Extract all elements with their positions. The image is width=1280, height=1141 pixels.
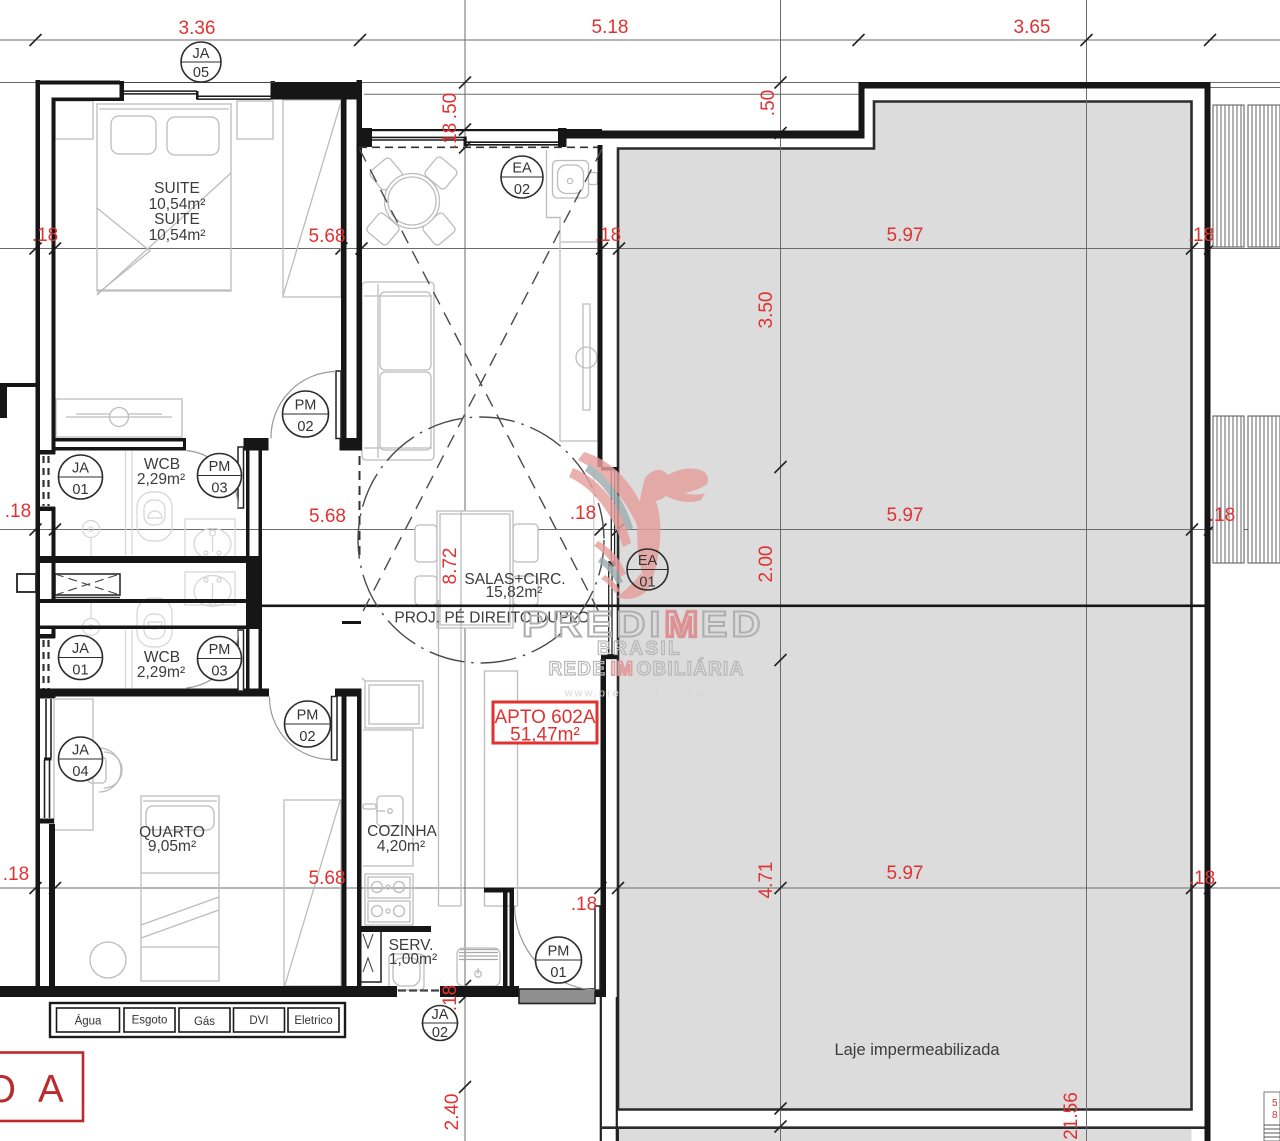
svg-text:PM: PM [548, 944, 570, 960]
svg-text:21.56: 21.56 [1061, 1092, 1082, 1140]
svg-text:5.68: 5.68 [309, 868, 346, 889]
svg-text:PM: PM [297, 708, 319, 724]
svg-text:.18: .18 [5, 501, 31, 522]
svg-text:EA: EA [638, 553, 658, 569]
svg-text:5: 5 [1272, 1098, 1278, 1109]
svg-text:5.97: 5.97 [887, 225, 924, 246]
svg-text:5.68: 5.68 [309, 226, 346, 247]
svg-text:02: 02 [514, 182, 530, 198]
svg-text:02: 02 [432, 1025, 448, 1041]
svg-text:10,54m²: 10,54m² [149, 227, 206, 244]
svg-text:5.97: 5.97 [887, 863, 924, 884]
svg-text:.18: .18 [1209, 505, 1235, 526]
svg-text:01: 01 [72, 482, 88, 498]
svg-text:2.00: 2.00 [756, 546, 777, 583]
svg-text:2,29m²: 2,29m² [137, 664, 185, 681]
svg-text:JA: JA [72, 641, 89, 657]
svg-text:Esgoto: Esgoto [132, 1015, 168, 1027]
svg-text:01: 01 [550, 965, 566, 981]
svg-text:4.71: 4.71 [756, 862, 777, 899]
svg-text:PM: PM [209, 642, 231, 658]
svg-text:OBILIÁRIA: OBILIÁRIA [637, 658, 745, 680]
svg-text:03: 03 [211, 664, 227, 680]
svg-text:15,82m²: 15,82m² [486, 584, 543, 601]
svg-text:2.40: 2.40 [442, 1094, 463, 1131]
svg-text:Laje impermeabilizada: Laje impermeabilizada [834, 1041, 1000, 1059]
svg-text:SUITE: SUITE [154, 180, 200, 197]
svg-text:4,20m²: 4,20m² [377, 838, 425, 855]
svg-text:02: 02 [297, 419, 313, 435]
svg-text:01: 01 [639, 575, 655, 591]
svg-text:.18: .18 [440, 123, 461, 149]
svg-text:8: 8 [1272, 1110, 1278, 1121]
svg-text:.18: .18 [570, 503, 596, 524]
svg-text:DVI: DVI [249, 1015, 268, 1027]
svg-text:.50: .50 [440, 93, 461, 119]
svg-text:ED: ED [701, 604, 765, 645]
svg-text:04: 04 [72, 764, 88, 780]
svg-text:5.18: 5.18 [592, 17, 629, 38]
svg-text:EA: EA [512, 161, 532, 177]
svg-text:Água: Água [75, 1015, 102, 1028]
svg-text:5.97: 5.97 [887, 505, 924, 526]
svg-text:JA: JA [193, 46, 210, 62]
svg-text:.18: .18 [571, 894, 597, 915]
svg-text:Eletrico: Eletrico [294, 1015, 332, 1027]
svg-text:3.36: 3.36 [179, 18, 216, 39]
svg-text:A: A [38, 1068, 64, 1111]
svg-text:1,00m²: 1,00m² [389, 951, 437, 968]
svg-text:03: 03 [211, 481, 227, 497]
svg-text:SUITE: SUITE [154, 211, 200, 228]
svg-text:3.50: 3.50 [756, 292, 777, 329]
svg-text:51,47m²: 51,47m² [510, 725, 580, 746]
svg-text:IM: IM [611, 659, 635, 680]
svg-text:Gás: Gás [194, 1016, 215, 1028]
svg-text:PM: PM [295, 398, 317, 414]
svg-text:3.65: 3.65 [1014, 17, 1051, 38]
svg-text:02: 02 [299, 729, 315, 745]
svg-text:.18: .18 [1189, 868, 1215, 889]
svg-text:8.72: 8.72 [440, 548, 461, 585]
svg-text:.18: .18 [1188, 225, 1214, 246]
svg-text:2,29m²: 2,29m² [137, 471, 185, 488]
svg-text:01: 01 [72, 663, 88, 679]
svg-text:.18: .18 [595, 225, 621, 246]
svg-text:.18: .18 [3, 864, 29, 885]
svg-text:REDE: REDE [549, 659, 607, 680]
svg-text:JA: JA [72, 461, 89, 477]
svg-text:.18: .18 [440, 985, 461, 1011]
svg-text:.18: .18 [32, 225, 58, 246]
svg-text:www.predimed.com.br: www.predimed.com.br [564, 688, 712, 700]
svg-text:9,05m²: 9,05m² [148, 838, 196, 855]
svg-text:BRASIL: BRASIL [597, 639, 682, 660]
svg-text:5.68: 5.68 [309, 506, 346, 527]
svg-text:JA: JA [72, 743, 89, 759]
svg-text:.50: .50 [758, 90, 779, 116]
svg-text:O: O [0, 1068, 16, 1111]
svg-text:PM: PM [209, 459, 231, 475]
svg-text:05: 05 [193, 65, 209, 81]
